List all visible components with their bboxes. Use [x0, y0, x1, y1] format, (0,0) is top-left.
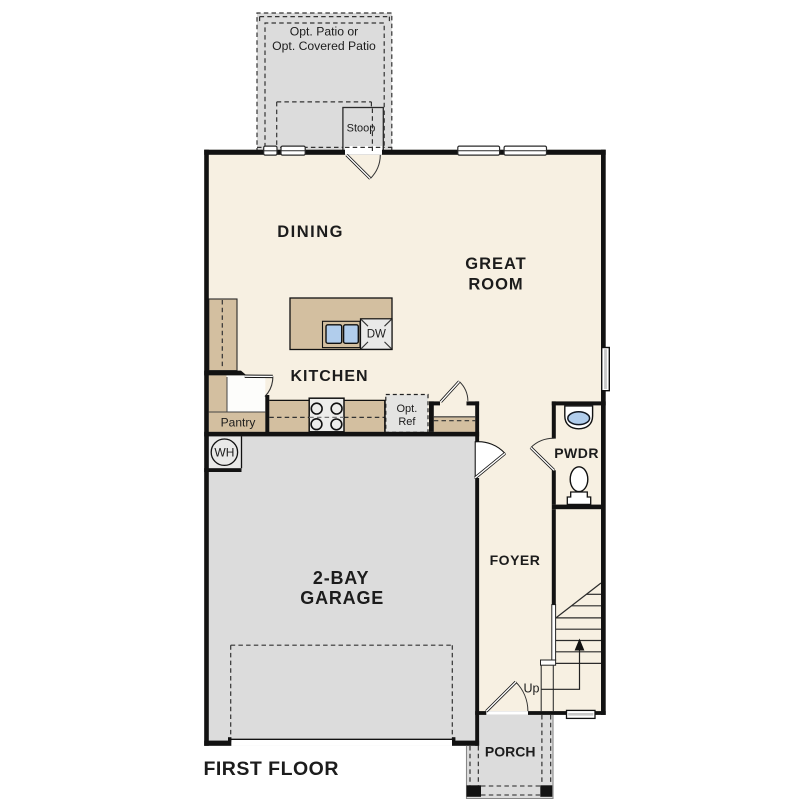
svg-text:FOYER: FOYER — [490, 552, 541, 568]
svg-text:Ref: Ref — [398, 416, 416, 428]
svg-text:Pantry: Pantry — [221, 416, 256, 430]
svg-text:ROOM: ROOM — [468, 276, 523, 294]
svg-text:Opt. Covered Patio: Opt. Covered Patio — [272, 39, 376, 53]
svg-text:Opt.: Opt. — [397, 403, 418, 415]
svg-text:Opt. Patio or: Opt. Patio or — [290, 25, 358, 39]
svg-text:DINING: DINING — [277, 223, 344, 241]
svg-text:FIRST FLOOR: FIRST FLOOR — [203, 758, 339, 780]
svg-text:KITCHEN: KITCHEN — [290, 368, 368, 385]
svg-text:Up: Up — [524, 681, 540, 695]
svg-text:PWDR: PWDR — [554, 445, 599, 461]
svg-text:GARAGE: GARAGE — [300, 588, 384, 608]
svg-text:GREAT: GREAT — [465, 255, 527, 273]
svg-text:2-BAY: 2-BAY — [313, 568, 369, 588]
svg-text:PORCH: PORCH — [485, 743, 536, 759]
svg-text:DW: DW — [367, 329, 386, 341]
svg-text:WH: WH — [214, 446, 234, 460]
svg-text:Stoop: Stoop — [347, 123, 376, 135]
